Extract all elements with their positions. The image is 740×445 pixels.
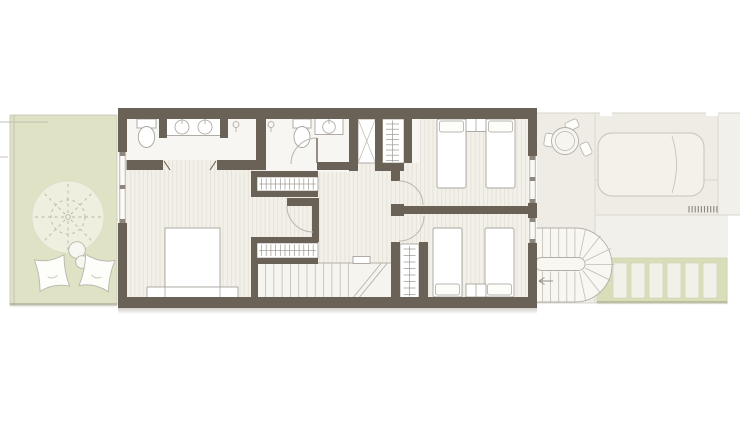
wall-left-upper [118, 108, 127, 152]
paving-notch [706, 111, 718, 116]
pillow [488, 284, 512, 295]
staircase-floor [258, 263, 392, 298]
pillow [436, 284, 460, 295]
shelf-closet-a [383, 119, 405, 163]
wall-bottom [118, 297, 537, 308]
toilet-bowl [138, 127, 154, 148]
sun-lounger [598, 133, 704, 196]
wall-top [118, 108, 537, 119]
stair-newel [353, 257, 370, 264]
shelf-closet-b [400, 244, 419, 298]
shower-divider-wall [256, 119, 266, 166]
window-bedroom2 [529, 156, 537, 203]
bedroom-divider-wall [404, 206, 528, 214]
paving-notch [600, 111, 612, 116]
garden-shadow [10, 303, 117, 308]
building-shadow [118, 308, 537, 314]
spiral-center-rail [535, 258, 585, 271]
wall-right-upper [528, 108, 537, 156]
pillow [489, 121, 513, 132]
deck-shadow [597, 301, 727, 305]
double-bed [165, 228, 220, 287]
wall-right-lower [528, 243, 537, 308]
building [118, 108, 537, 314]
floor-plan-canvas [0, 0, 740, 445]
terrace [535, 111, 740, 305]
wardrobe-2 [257, 243, 318, 258]
window-bedroom3 [529, 218, 537, 243]
door-hinge-block [391, 204, 404, 216]
wall-right-mid [528, 203, 537, 218]
wall-left-lower [118, 223, 127, 308]
window-master-bedroom [119, 152, 127, 223]
terrace-floor-edge [718, 113, 740, 215]
garden-deck [597, 258, 727, 305]
floor-plan-page [0, 0, 740, 445]
toilet-bowl [294, 127, 310, 148]
garden-patio [0, 115, 117, 308]
wardrobe-1 [257, 177, 318, 191]
pillow [440, 121, 464, 132]
